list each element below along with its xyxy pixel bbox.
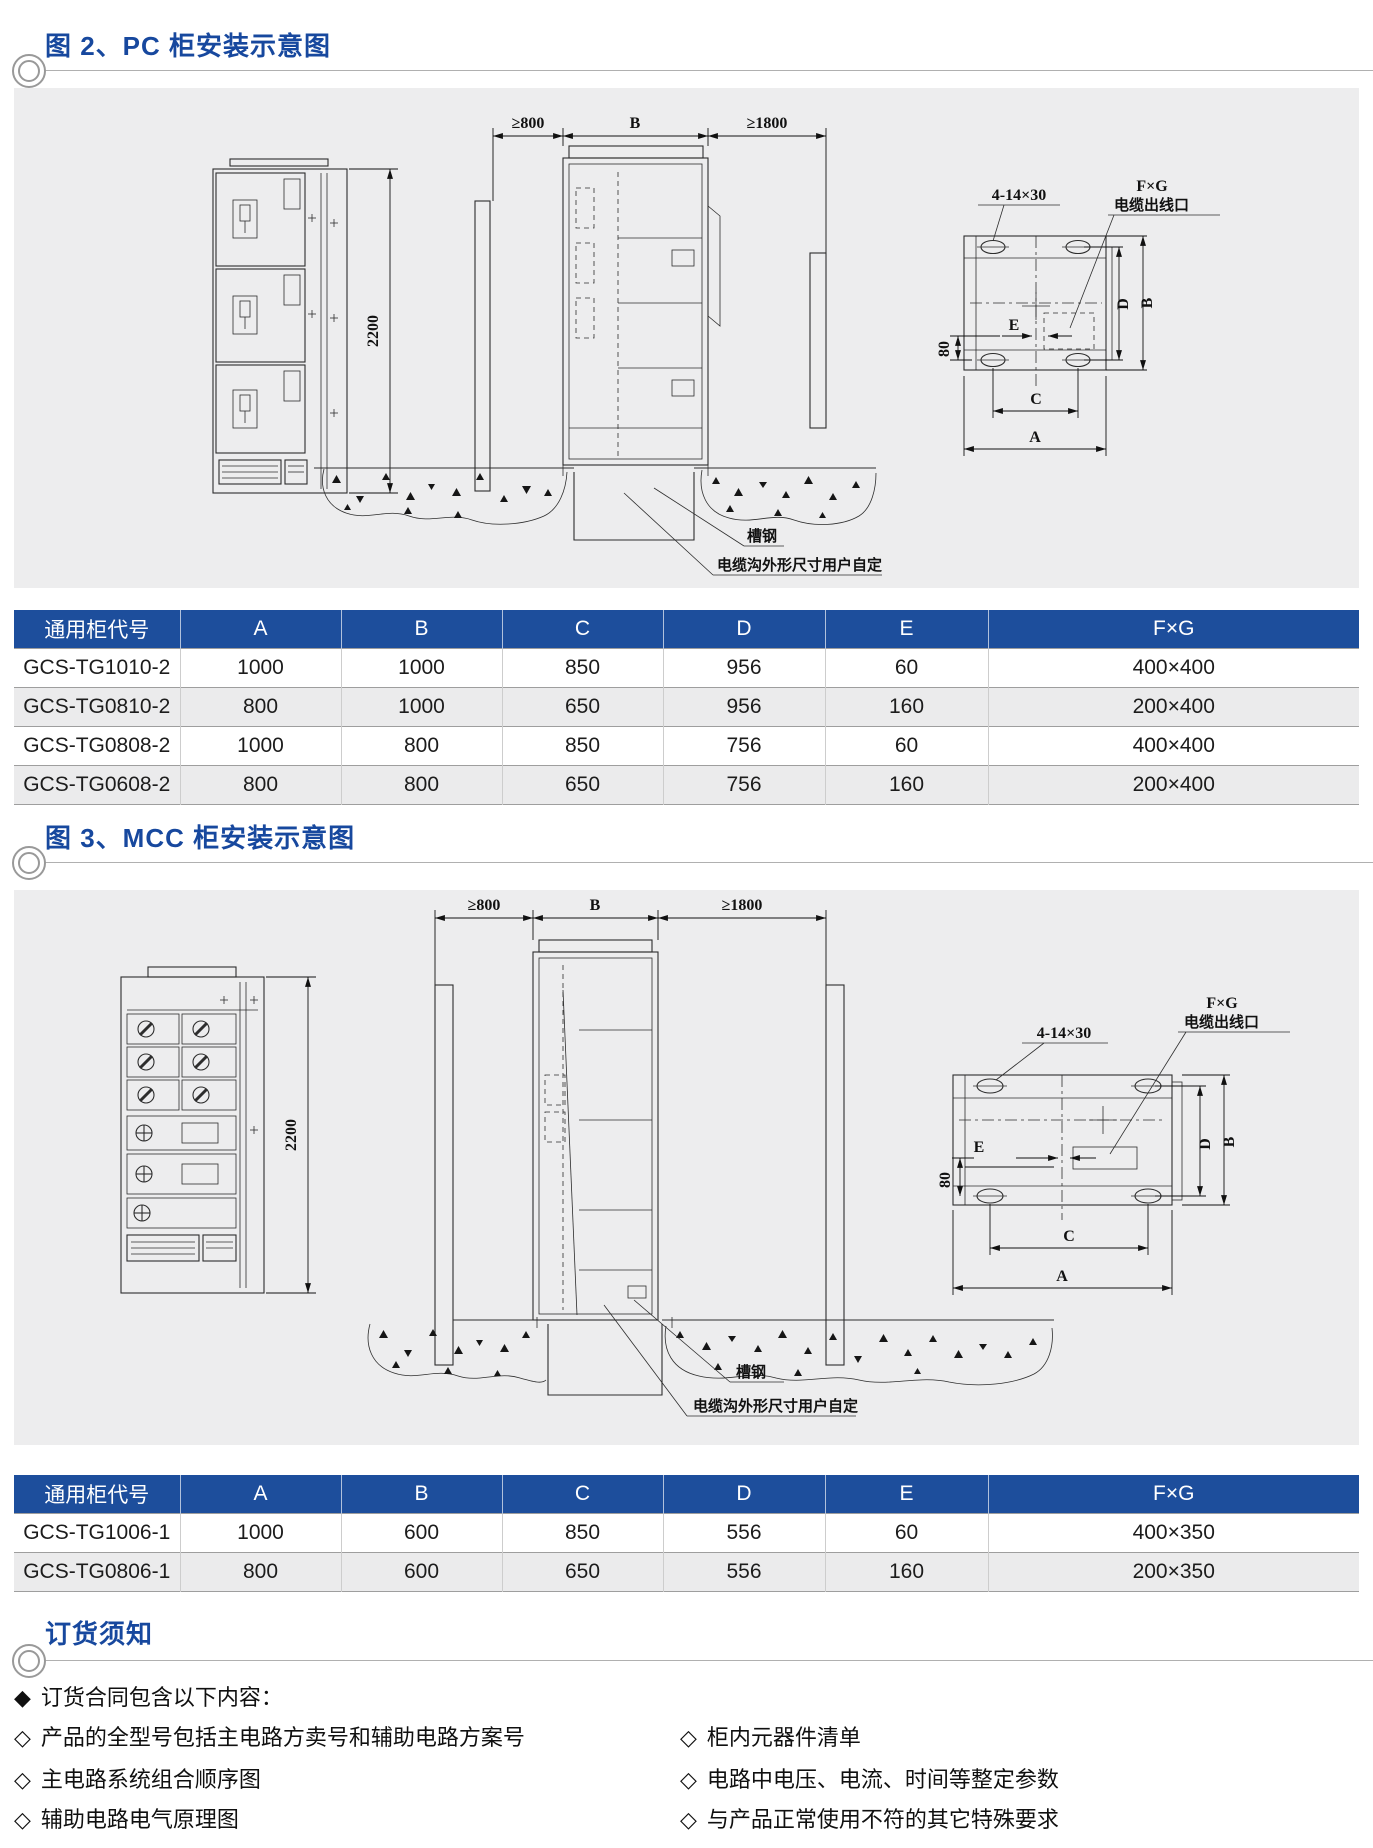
data-cell: 1000: [180, 1514, 341, 1553]
catalog-page: 图 2、PC 柜安装示意图: [0, 0, 1373, 1848]
section-divider: [30, 70, 1373, 71]
pc-side-view: ≥800 B ≥1800: [314, 115, 882, 575]
header-cell: A: [180, 1475, 341, 1514]
pc-dim-b-label: B: [1139, 297, 1156, 308]
data-cell: 556: [663, 1553, 825, 1592]
header-cell: 通用柜代号: [14, 610, 180, 649]
header-cell: E: [825, 1475, 988, 1514]
right-wall-hatch: [810, 253, 826, 428]
data-cell: 160: [825, 766, 988, 805]
section-divider: [30, 862, 1373, 863]
list-item: ◇主电路系统组合顺序图: [14, 1762, 261, 1794]
pc-cable-trench-label: 电缆沟外形尺寸用户自定: [717, 556, 882, 574]
data-cell: GCS-TG0808-2: [14, 727, 180, 766]
list-item: ◇电路中电压、电流、时间等整定参数: [680, 1762, 1059, 1794]
data-cell: 850: [502, 649, 663, 688]
pc-drawing-panel: 2200 ≥800 B ≥1800: [14, 88, 1359, 588]
mcc-dim-80-label: 80: [937, 1172, 954, 1188]
data-cell: 60: [825, 649, 988, 688]
list-item: ◇与产品正常使用不符的其它特殊要求: [680, 1802, 1059, 1834]
data-cell: 850: [502, 1514, 663, 1553]
data-cell: 400×350: [988, 1514, 1359, 1553]
pc-cable-outlet-label: 电缆出线口: [1114, 196, 1189, 214]
data-cell: 1000: [341, 688, 502, 727]
data-cell: 650: [502, 1553, 663, 1592]
list-item-text: 与产品正常使用不符的其它特殊要求: [707, 1807, 1059, 1832]
section-ring-icon: [12, 846, 46, 880]
header-cell: B: [341, 1475, 502, 1514]
header-cell: A: [180, 610, 341, 649]
pc-installation-drawing: 2200 ≥800 B ≥1800: [14, 88, 1359, 588]
hollow-diamond-icon: ◇: [680, 1807, 697, 1833]
header-cell: C: [502, 1475, 663, 1514]
data-cell: 60: [825, 727, 988, 766]
ordering-title: 订货须知: [45, 1614, 153, 1651]
mcc-plan-view: E 80 C A: [937, 995, 1290, 1295]
data-cell: 160: [825, 688, 988, 727]
data-cell: 756: [663, 766, 825, 805]
data-cell: 650: [502, 688, 663, 727]
pc-fg-label: F×G: [1136, 178, 1168, 195]
mcc-dim-a-label: A: [1056, 1268, 1068, 1285]
mcc-fg-label: F×G: [1206, 995, 1238, 1012]
mcc-dim-c-label: C: [1063, 1228, 1075, 1245]
data-cell: GCS-TG1006-1: [14, 1514, 180, 1553]
header-cell: D: [663, 1475, 825, 1514]
data-cell: 400×400: [988, 649, 1359, 688]
list-item: ◇产品的全型号包括主电路方卖号和辅助电路方案号: [14, 1720, 525, 1752]
pc-dim-80-label: 80: [936, 341, 953, 357]
hollow-diamond-icon: ◇: [680, 1767, 697, 1793]
list-item: ◇辅助电路电气原理图: [14, 1802, 239, 1834]
mcc-side-view: ≥800 B ≥1800: [368, 897, 1054, 1416]
pc-width-b-label: B: [630, 115, 641, 132]
table-row: GCS-TG0808-2100080085075660400×400: [14, 727, 1359, 766]
mcc-width-b-label: B: [590, 897, 601, 914]
mcc-installation-drawing: 2200 ≥800 B ≥1800: [14, 890, 1359, 1445]
data-cell: 600: [341, 1514, 502, 1553]
data-cell: 200×400: [988, 766, 1359, 805]
table-header-row: 通用柜代号 A B C D E F×G: [14, 1475, 1359, 1514]
list-item-text: 柜内元器件清单: [707, 1725, 861, 1750]
data-cell: GCS-TG0810-2: [14, 688, 180, 727]
section-ring-icon: [12, 54, 46, 88]
data-cell: 850: [502, 727, 663, 766]
pc-spec-table-wrap: 通用柜代号 A B C D E F×G GCS-TG1010-210001000…: [14, 610, 1359, 805]
list-item-text: 产品的全型号包括主电路方卖号和辅助电路方案号: [41, 1725, 525, 1750]
figure3-title: 图 3、MCC 柜安装示意图: [45, 818, 355, 855]
data-cell: 756: [663, 727, 825, 766]
list-item-text: 电路中电压、电流、时间等整定参数: [707, 1767, 1059, 1792]
right-wall-hatch: [826, 985, 844, 1365]
list-item-text: 主电路系统组合顺序图: [41, 1767, 261, 1792]
table-row: GCS-TG1006-1100060085055660400×350: [14, 1514, 1359, 1553]
pc-height-dim-label: 2200: [365, 315, 382, 347]
pc-dim-a-label: A: [1029, 429, 1041, 446]
header-cell: F×G: [988, 610, 1359, 649]
hollow-diamond-icon: ◇: [680, 1725, 697, 1751]
data-cell: 956: [663, 688, 825, 727]
hollow-diamond-icon: ◇: [14, 1767, 31, 1793]
header-cell: 通用柜代号: [14, 1475, 180, 1514]
pc-channel-steel-label: 槽钢: [747, 527, 777, 545]
mcc-drawing-panel: 2200 ≥800 B ≥1800: [14, 890, 1359, 1445]
mcc-bolt-hole-label: 4-14×30: [1037, 1025, 1091, 1042]
list-item: ◇柜内元器件清单: [680, 1720, 861, 1752]
table-row: GCS-TG0806-1800600650556160200×350: [14, 1553, 1359, 1592]
data-cell: 650: [502, 766, 663, 805]
data-cell: 160: [825, 1553, 988, 1592]
data-cell: 600: [341, 1553, 502, 1592]
mcc-clearance-right-label: ≥1800: [722, 897, 763, 914]
pc-plan-view: E 80 C A: [936, 178, 1220, 456]
data-cell: 800: [341, 766, 502, 805]
list-item-text: 辅助电路电气原理图: [41, 1807, 239, 1832]
table-row: GCS-TG0810-28001000650956160200×400: [14, 688, 1359, 727]
mcc-dim-d-label: D: [1197, 1138, 1214, 1150]
data-cell: 956: [663, 649, 825, 688]
left-wall-hatch: [435, 985, 453, 1365]
mcc-clearance-left-label: ≥800: [468, 897, 501, 914]
mcc-channel-steel-label: 槽钢: [736, 1363, 766, 1381]
mcc-spec-table-wrap: 通用柜代号 A B C D E F×G GCS-TG1006-110006008…: [14, 1475, 1359, 1592]
table-row: GCS-TG1010-21000100085095660400×400: [14, 649, 1359, 688]
data-cell: 800: [180, 766, 341, 805]
table-row: GCS-TG0608-2800800650756160200×400: [14, 766, 1359, 805]
filled-diamond-icon: ◆: [14, 1685, 31, 1711]
left-wall-hatch: [475, 201, 490, 491]
data-cell: 1000: [180, 727, 341, 766]
table-header-row: 通用柜代号 A B C D E F×G: [14, 610, 1359, 649]
pc-bolt-hole-label: 4-14×30: [992, 187, 1046, 204]
mcc-front-view: 2200: [121, 967, 316, 1293]
header-cell: E: [825, 610, 988, 649]
mcc-dim-b-label: B: [1221, 1136, 1238, 1147]
figure2-title: 图 2、PC 柜安装示意图: [45, 26, 331, 63]
section-divider: [30, 1660, 1373, 1661]
data-cell: 800: [180, 1553, 341, 1592]
data-cell: 1000: [180, 649, 341, 688]
data-cell: 800: [180, 688, 341, 727]
mcc-height-dim-label: 2200: [283, 1119, 300, 1151]
mcc-dim-e-label: E: [974, 1139, 985, 1156]
pc-clearance-right-label: ≥1800: [747, 115, 788, 132]
header-cell: D: [663, 610, 825, 649]
data-cell: GCS-TG1010-2: [14, 649, 180, 688]
mcc-cable-trench-label: 电缆沟外形尺寸用户自定: [693, 1397, 858, 1415]
data-cell: GCS-TG0608-2: [14, 766, 180, 805]
pc-clearance-left-label: ≥800: [512, 115, 545, 132]
mcc-cable-outlet-label: 电缆出线口: [1184, 1013, 1259, 1031]
pc-front-view: 2200: [213, 159, 398, 493]
header-cell: C: [502, 610, 663, 649]
pc-spec-table: 通用柜代号 A B C D E F×G GCS-TG1010-210001000…: [14, 610, 1359, 805]
pc-dim-c-label: C: [1030, 391, 1042, 408]
hollow-diamond-icon: ◇: [14, 1725, 31, 1751]
hollow-diamond-icon: ◇: [14, 1807, 31, 1833]
data-cell: 1000: [341, 649, 502, 688]
data-cell: 60: [825, 1514, 988, 1553]
header-cell: F×G: [988, 1475, 1359, 1514]
pc-dim-e-label: E: [1009, 317, 1020, 334]
data-cell: 200×400: [988, 688, 1359, 727]
mcc-spec-table: 通用柜代号 A B C D E F×G GCS-TG1006-110006008…: [14, 1475, 1359, 1592]
data-cell: GCS-TG0806-1: [14, 1553, 180, 1592]
data-cell: 400×400: [988, 727, 1359, 766]
header-cell: B: [341, 610, 502, 649]
data-cell: 800: [341, 727, 502, 766]
ordering-heading-text: 订货合同包含以下内容：: [41, 1685, 283, 1710]
ordering-heading: ◆订货合同包含以下内容：: [14, 1680, 283, 1712]
pc-dim-d-label: D: [1115, 298, 1132, 310]
data-cell: 200×350: [988, 1553, 1359, 1592]
section-ring-icon: [12, 1644, 46, 1678]
data-cell: 556: [663, 1514, 825, 1553]
